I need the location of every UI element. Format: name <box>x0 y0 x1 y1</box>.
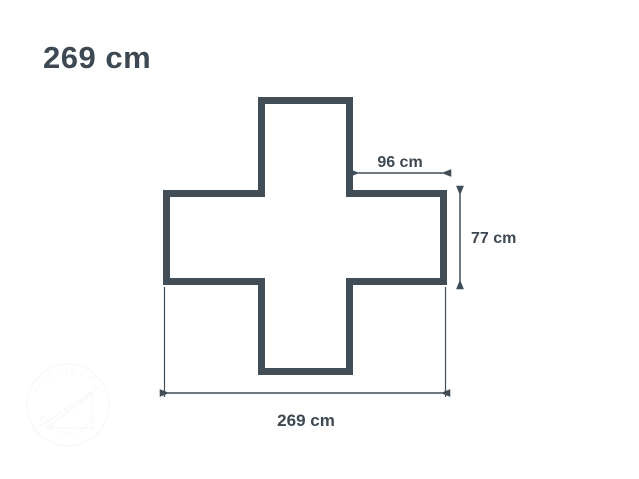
cross-shape-outline <box>167 101 444 372</box>
arm-width-label: 96 cm <box>377 154 422 171</box>
cross-dimension-diagram: ARCHIEXPO ARCHIEXPO 96 cm 77 cm 269 cm <box>0 0 639 479</box>
total-width-dimension: 269 cm <box>165 287 446 430</box>
total-width-label: 269 cm <box>277 411 335 430</box>
arm-width-dimension: 96 cm <box>358 154 443 173</box>
watermark-stamp: ARCHIEXPO ARCHIEXPO <box>27 364 109 446</box>
arm-height-label: 77 cm <box>471 230 516 247</box>
arm-height-dimension: 77 cm <box>460 194 516 281</box>
watermark-text-bottom: ARCHIEXPO <box>36 412 100 438</box>
